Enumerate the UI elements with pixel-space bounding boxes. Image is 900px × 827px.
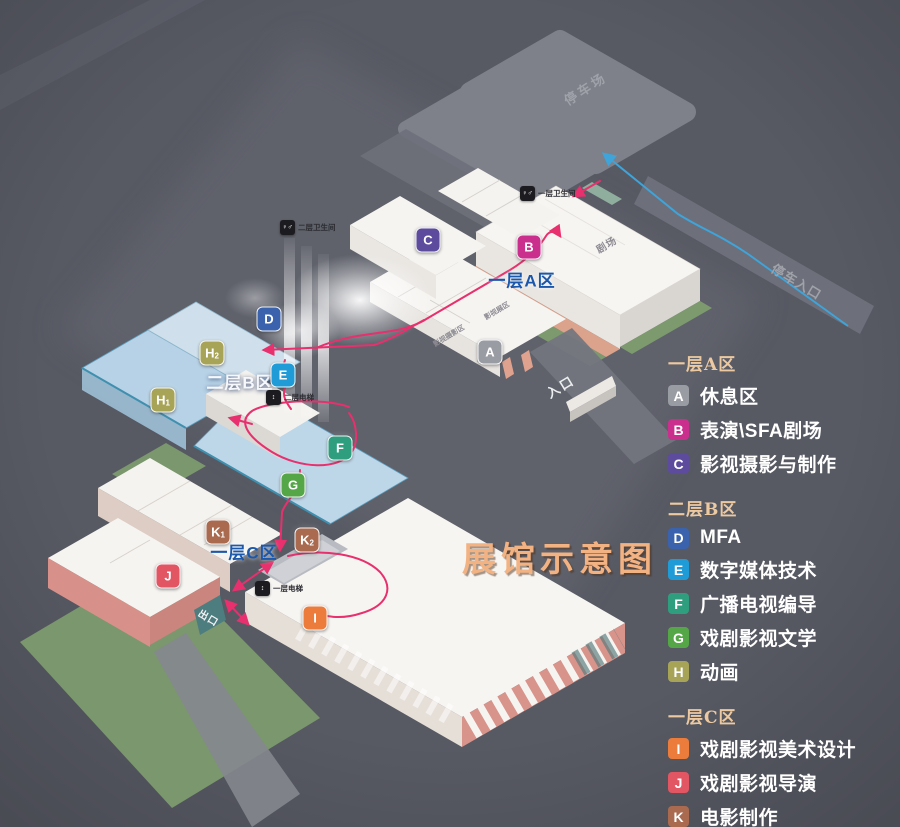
zone-marker: F: [328, 436, 353, 461]
area-label: 一层A区: [488, 267, 555, 292]
zone-marker-letter: H: [205, 346, 214, 361]
page-title: 展馆示意图: [462, 532, 657, 581]
legend-badge: D: [668, 528, 689, 549]
legend-item: E 数字媒体技术: [668, 556, 893, 583]
zone-marker-subscript: 1: [165, 399, 169, 408]
legend: 一层A区 A 休息区 B 表演\SFA剧场 C 影视摄影与制作: [668, 350, 893, 827]
zone-marker-letter: E: [279, 368, 288, 383]
zone-marker: K 2: [295, 528, 320, 553]
legend-header: 一层C区: [668, 703, 893, 728]
zone-marker-letter: G: [288, 478, 298, 493]
legend-badge: C: [668, 453, 689, 474]
zone-marker: I: [303, 606, 328, 631]
legend-item: J 戏剧影视导演: [668, 769, 893, 796]
legend-label: 广播电视编导: [700, 590, 817, 617]
facility-chip: ↕ 二层电梯: [266, 390, 314, 405]
legend-label: 影视摄影与制作: [700, 450, 837, 477]
legend-item: F 广播电视编导: [668, 590, 893, 617]
legend-label: 戏剧影视导演: [700, 769, 817, 796]
legend-badge: I: [668, 738, 689, 759]
facility-label: 一层电梯: [273, 583, 303, 594]
legend-header: 二层B区: [668, 495, 893, 520]
legend-item: H 动画: [668, 658, 893, 685]
legend-badge: K: [668, 806, 689, 827]
facility-chip: ↕ 一层电梯: [255, 581, 303, 596]
legend-badge: E: [668, 559, 689, 580]
legend-label: 戏剧影视文学: [700, 624, 817, 651]
facility-icon: ↕: [255, 581, 270, 596]
facility-label: 二层电梯: [284, 392, 314, 403]
zone-marker-letter: A: [485, 345, 494, 360]
legend-badge: J: [668, 772, 689, 793]
legend-badge: H: [668, 661, 689, 682]
zone-marker-subscript: 2: [214, 352, 218, 361]
legend-badge: A: [668, 385, 689, 406]
legend-badge: F: [668, 593, 689, 614]
zone-marker-letter: C: [423, 233, 432, 248]
facility-chip: ♀♂ 一层卫生间: [520, 186, 576, 201]
zone-marker-letter: J: [164, 569, 171, 584]
zone-marker-letter: H: [156, 393, 165, 408]
facility-icon: ↕: [266, 390, 281, 405]
area-label: 二层B区: [206, 369, 273, 394]
zone-marker: G: [281, 473, 306, 498]
zone-marker: K 1: [206, 520, 231, 545]
zone-marker: A: [478, 340, 503, 365]
zone-marker-subscript: 2: [309, 539, 313, 548]
legend-label: MFA: [700, 527, 742, 549]
zone-marker-letter: K: [300, 533, 309, 548]
legend-badge: G: [668, 627, 689, 648]
legend-label: 动画: [700, 658, 739, 685]
zone-marker: D: [257, 307, 282, 332]
zone-marker-letter: I: [313, 611, 317, 626]
legend-label: 电影制作: [700, 803, 778, 827]
legend-item: K 电影制作: [668, 803, 893, 827]
legend-item: A 休息区: [668, 382, 893, 409]
legend-item: C 影视摄影与制作: [668, 450, 893, 477]
facility-icon: ♀♂: [280, 220, 295, 235]
legend-label: 戏剧影视美术设计: [700, 735, 856, 762]
facility-label: 一层卫生间: [538, 188, 576, 199]
zone-marker-subscript: 1: [220, 531, 224, 540]
zone-marker-letter: D: [264, 312, 273, 327]
legend-header: 一层A区: [668, 350, 893, 375]
legend-item: I 戏剧影视美术设计: [668, 735, 893, 762]
legend-section-b: 二层B区 D MFA E 数字媒体技术 F 广播电视编导: [668, 495, 893, 685]
legend-label: 数字媒体技术: [700, 556, 817, 583]
zone-marker-letter: B: [524, 240, 533, 255]
exhibition-map-canvas: 一层A区 二层B区 一层C区 停车场 停车入口 入口 出口 剧场 影视展区 休息…: [0, 0, 900, 827]
legend-badge: B: [668, 419, 689, 440]
zone-marker: B: [517, 235, 542, 260]
legend-label: 休息区: [700, 382, 759, 409]
legend-item: D MFA: [668, 527, 893, 549]
legend-section-a: 一层A区 A 休息区 B 表演\SFA剧场 C 影视摄影与制作: [668, 350, 893, 477]
facility-icon: ♀♂: [520, 186, 535, 201]
legend-item: B 表演\SFA剧场: [668, 416, 893, 443]
legend-item: G 戏剧影视文学: [668, 624, 893, 651]
zone-marker: H 1: [151, 388, 176, 413]
facility-chip: ♀♂ 二层卫生间: [280, 220, 336, 235]
zone-marker: H 2: [200, 341, 225, 366]
zone-marker-letter: K: [211, 525, 220, 540]
zone-marker-letter: F: [336, 441, 344, 456]
legend-section-c: 一层C区 I 戏剧影视美术设计 J 戏剧影视导演 K 电影制作: [668, 703, 893, 827]
zone-marker: C: [416, 228, 441, 253]
zone-marker: J: [156, 564, 181, 589]
zone-marker: E: [271, 363, 296, 388]
facility-label: 二层卫生间: [298, 222, 336, 233]
legend-label: 表演\SFA剧场: [700, 416, 822, 443]
